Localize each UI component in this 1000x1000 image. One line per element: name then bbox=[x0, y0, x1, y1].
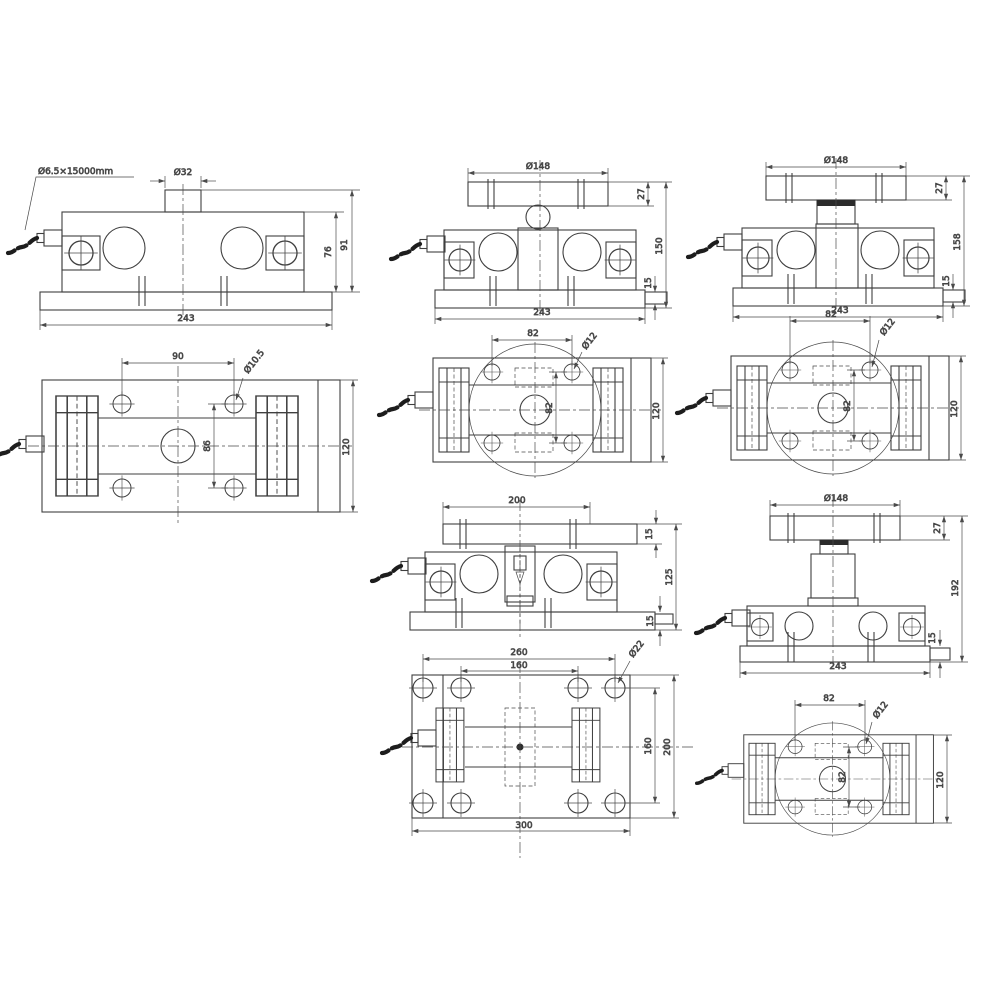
dim-overall-height: 125 bbox=[665, 568, 675, 585]
cable bbox=[372, 558, 426, 581]
technical-drawing-page: Ø6.5×15000mm Ø32 243 76 91 bbox=[0, 0, 1000, 1000]
dim-base-width: 243 bbox=[829, 662, 846, 672]
dim-hole-pitch-y: 82 bbox=[545, 402, 555, 413]
cable bbox=[391, 236, 445, 259]
dim-base-width: 243 bbox=[533, 308, 550, 318]
view-mount-pin-side-dimensions: 200 15 125 15 bbox=[443, 496, 682, 646]
dim-overall-height: 192 bbox=[951, 579, 961, 596]
view-mount-column-plan-dimensions: 82 Ø12 82 120 bbox=[795, 694, 952, 823]
dim-plate-width: 300 bbox=[515, 821, 532, 831]
view-mount-cup-plan: 82 Ø12 82 120 bbox=[677, 310, 966, 476]
dim-plate-width: 120 bbox=[936, 771, 946, 788]
dim-bolt-pitch-outer: 260 bbox=[510, 648, 527, 658]
dim-overall-height: 150 bbox=[655, 237, 665, 254]
cable bbox=[382, 730, 436, 753]
view-loadcell-top-dimensions: 90 Ø10.5 86 120 bbox=[122, 348, 358, 512]
dim-overall-height: 158 bbox=[953, 233, 963, 250]
dim-hole-pitch-x: 82 bbox=[825, 310, 836, 320]
dim-hole-diameter: Ø12 bbox=[878, 316, 898, 337]
dim-hole-pitch-y: 82 bbox=[843, 400, 853, 411]
dim-plate-depth: 200 bbox=[663, 738, 673, 755]
dim-bolt-pitch-inner: 160 bbox=[510, 661, 527, 671]
dim-hole-row-pitch: 86 bbox=[203, 440, 213, 452]
view-mount-pin-side: 200 15 125 15 bbox=[372, 496, 682, 646]
view-mount-cup-side: Ø148 27 158 15 243 bbox=[688, 155, 970, 322]
technical-drawing: Ø6.5×15000mm Ø32 243 76 91 bbox=[0, 0, 1000, 1000]
view-loadcell-side-dimensions: Ø6.5×15000mm Ø32 243 76 91 bbox=[25, 166, 360, 330]
dim-plate-width: 120 bbox=[652, 402, 662, 419]
dim-hole-diameter: Ø12 bbox=[580, 330, 600, 351]
dim-top-plate-thickness: 27 bbox=[637, 188, 647, 199]
dim-top-plate-diameter: Ø148 bbox=[824, 493, 849, 504]
view-mount-pin-base-plan: 260 160 Ø22 160 200 300 bbox=[382, 638, 695, 858]
view-loadcell-top: 90 Ø10.5 86 120 bbox=[0, 348, 358, 526]
dim-overall-height: 91 bbox=[340, 239, 350, 250]
dim-top-plate-width: 200 bbox=[508, 496, 525, 506]
dim-top-plate-thickness: 15 bbox=[645, 528, 655, 539]
dim-top-plate-diameter: Ø148 bbox=[526, 161, 551, 172]
view-mount-ball-plan: 82 Ø12 82 120 bbox=[379, 329, 668, 478]
view-mount-column-side: Ø148 27 192 15 243 bbox=[696, 493, 968, 678]
cable bbox=[688, 234, 742, 257]
view-loadcell-side: Ø6.5×15000mm Ø32 243 76 91 bbox=[8, 166, 360, 330]
dim-plate-width: 120 bbox=[950, 400, 960, 417]
cable bbox=[8, 230, 62, 253]
view-mount-ball-side: Ø148 27 150 15 243 bbox=[391, 160, 672, 324]
dim-top-plate-diameter: Ø148 bbox=[824, 155, 849, 166]
dim-hole-pitch: 90 bbox=[172, 352, 184, 362]
dim-body-height: 76 bbox=[324, 246, 334, 258]
dim-cable-spec: Ø6.5×15000mm bbox=[38, 166, 113, 177]
dim-hole-diameter: Ø10.5 bbox=[242, 348, 267, 376]
dim-bolt-row-pitch: 160 bbox=[644, 737, 654, 754]
dim-top-plate-thickness: 27 bbox=[933, 522, 943, 533]
dim-hole-diameter: Ø12 bbox=[871, 699, 891, 720]
dim-foot-thickness: 15 bbox=[644, 277, 654, 288]
dim-hole-pitch-x: 82 bbox=[823, 694, 834, 704]
cable bbox=[0, 436, 44, 459]
dim-foot-thickness: 15 bbox=[646, 615, 656, 626]
dim-foot-thickness: 15 bbox=[942, 275, 952, 286]
dim-top-plate-thickness: 27 bbox=[935, 182, 945, 193]
dim-hole-pitch-x: 82 bbox=[527, 329, 538, 339]
dim-hole-diameter: Ø22 bbox=[627, 638, 647, 659]
dim-plate-width: 120 bbox=[342, 438, 352, 455]
dim-base-width: 243 bbox=[177, 314, 194, 324]
dim-hole-pitch-y: 82 bbox=[838, 771, 848, 782]
view-mount-column-side-dimensions: Ø148 27 192 15 243 bbox=[740, 493, 968, 678]
dim-boss-diameter: Ø32 bbox=[174, 167, 193, 178]
view-mount-column-plan: 82 Ø12 82 120 bbox=[697, 694, 952, 837]
dim-foot-thickness: 15 bbox=[928, 632, 938, 643]
cable bbox=[696, 610, 750, 633]
